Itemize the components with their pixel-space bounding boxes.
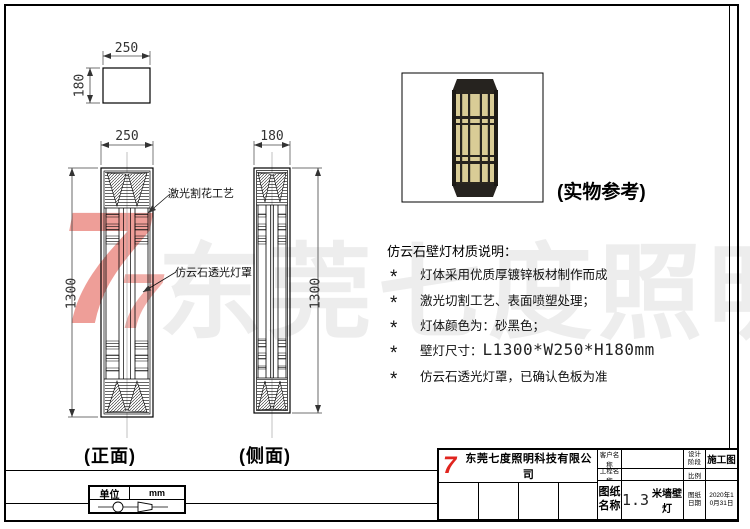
- callout-laser-cut: 激光割花工艺: [168, 185, 234, 201]
- note-text: 壁灯尺寸：: [420, 340, 483, 359]
- side-height-dim: 1300: [309, 272, 324, 316]
- plan-width-dim: 250: [103, 41, 150, 56]
- note-text: 仿云石透光灯罩，已确认色板为准: [420, 366, 608, 385]
- note-bullet-icon: *: [390, 375, 420, 385]
- front-view-drawing: [68, 141, 176, 438]
- plan-height-dim: 180: [73, 68, 88, 104]
- reference-photo: [402, 73, 543, 202]
- note-item: * 灯体颜色为：砂黑色；: [390, 315, 545, 334]
- plan-view-drawing: [86, 51, 150, 103]
- note-text: 灯体颜色为：砂黑色；: [420, 315, 545, 334]
- photo-caption: (实物参考): [557, 177, 646, 204]
- note-item: * 壁灯尺寸： L1300*W250*H180mm: [390, 340, 655, 359]
- note-item: * 仿云石透光灯罩，已确认色板为准: [390, 366, 608, 385]
- note-dimension: L1300*W250*H180mm: [483, 340, 655, 359]
- projection-symbol-icon: [98, 502, 168, 512]
- drawing-sheet: 7 7 东莞七度照明 单位 mm 7 东莞七度照明科技有限公司 客户名称 设计阶…: [0, 0, 750, 529]
- front-height-dim: 1300: [65, 272, 80, 316]
- side-width-dim: 180: [254, 129, 290, 144]
- front-view-label: (正面): [84, 442, 136, 468]
- callout-marble-shade: 仿云石透光灯罩: [175, 264, 252, 280]
- note-item: * 灯体采用优质厚镀锌板材制作而成: [390, 264, 608, 283]
- note-bullet-icon: *: [390, 273, 420, 283]
- note-item: * 激光切割工艺、表面喷塑处理；: [390, 290, 595, 309]
- note-text: 激光切割工艺、表面喷塑处理；: [420, 290, 595, 309]
- side-view-label: (侧面): [239, 442, 291, 468]
- front-width-dim: 250: [101, 129, 153, 144]
- note-text: 灯体采用优质厚镀锌板材制作而成: [420, 264, 608, 283]
- notes-title: 仿云石壁灯材质说明：: [387, 241, 517, 260]
- note-bullet-icon: *: [390, 324, 420, 334]
- note-bullet-icon: *: [390, 349, 420, 359]
- note-bullet-icon: *: [390, 299, 420, 309]
